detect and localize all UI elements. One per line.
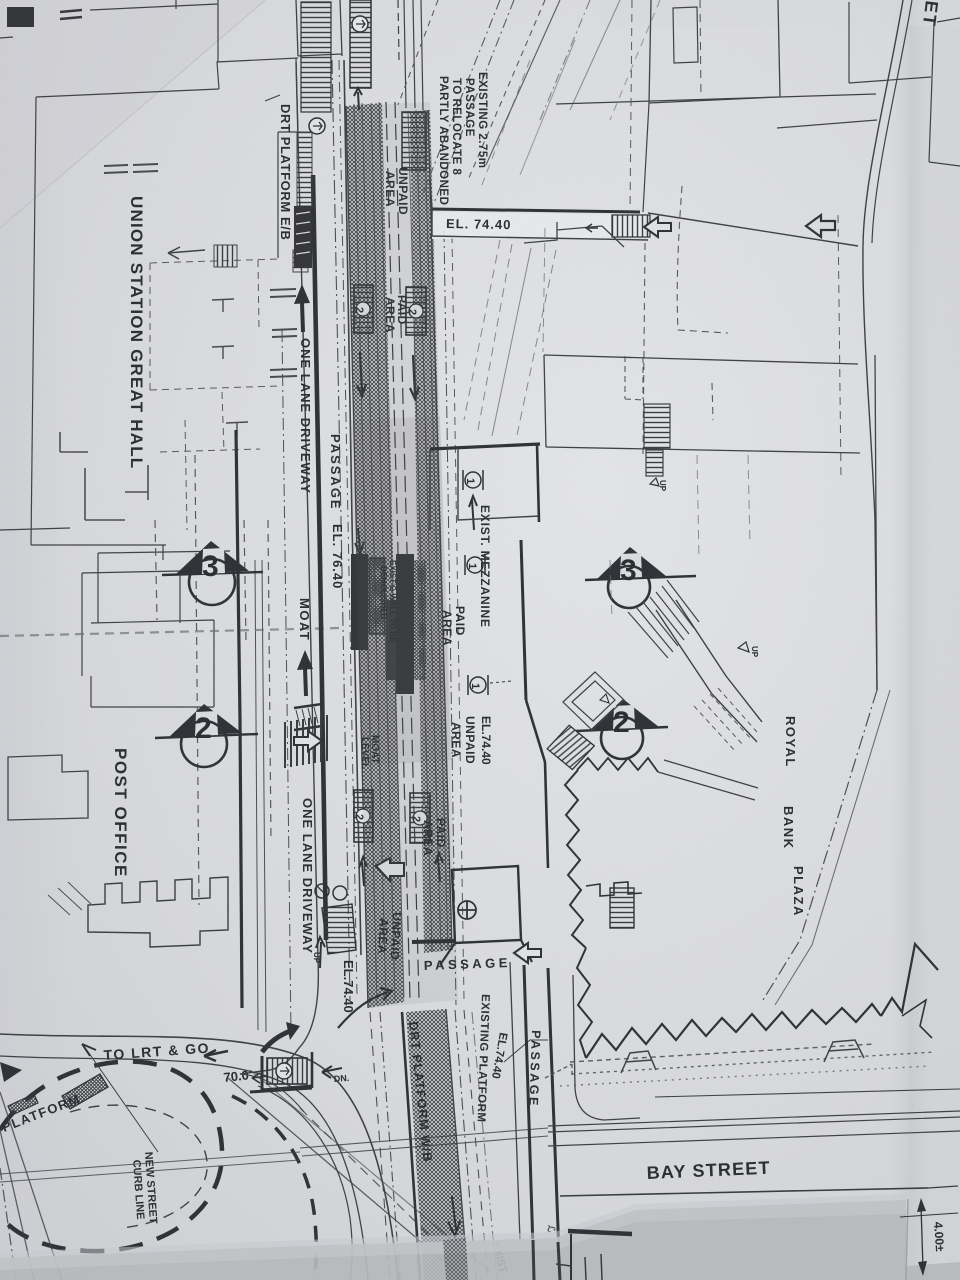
svg-text:EL.74.40: EL.74.40	[479, 716, 493, 765]
svg-text:PASSAGE: PASSAGE	[424, 955, 512, 973]
svg-text:DRT PLATFORM E/B: DRT PLATFORM E/B	[278, 104, 293, 240]
svg-text:PAID: PAID	[453, 606, 467, 636]
svg-text:3: 3	[620, 554, 637, 587]
svg-text:UNPAID: UNPAID	[463, 716, 477, 764]
svg-text:UP: UP	[312, 952, 321, 964]
svg-text:EL. 74.40: EL. 74.40	[446, 216, 512, 232]
svg-text:AREA: AREA	[449, 722, 463, 758]
svg-text:ET: ET	[919, 0, 942, 29]
svg-text:PASSAGE: PASSAGE	[328, 434, 343, 511]
svg-text:POST OFFICE: POST OFFICE	[111, 748, 130, 878]
svg-text:UP: UP	[750, 646, 759, 658]
svg-text:EXISTING 2.75m: EXISTING 2.75m	[476, 72, 488, 168]
svg-text:AREA: AREA	[440, 610, 454, 646]
svg-text:1: 1	[466, 563, 478, 569]
svg-text:3: 3	[202, 550, 219, 583]
svg-text:2: 2	[353, 814, 365, 820]
svg-text:ONE LANE DRIVEWAY: ONE LANE DRIVEWAY	[298, 338, 313, 494]
svg-text:MOAT: MOAT	[297, 598, 312, 641]
svg-text:70.0: 70.0	[223, 1067, 250, 1085]
svg-text:UP: UP	[658, 480, 667, 492]
svg-text:UNION STATION GREAT HALL: UNION STATION GREAT HALL	[127, 196, 146, 469]
svg-text:BANK: BANK	[781, 806, 796, 850]
svg-text:ONE LANE DRIVEWAY: ONE LANE DRIVEWAY	[300, 798, 315, 954]
svg-text:PLAZA: PLAZA	[791, 866, 806, 917]
svg-text:EL.74.40: EL.74.40	[341, 960, 356, 1013]
svg-text:DN.: DN.	[333, 1073, 349, 1084]
svg-text:2: 2	[613, 706, 630, 739]
svg-text:PASSAGE: PASSAGE	[463, 78, 475, 137]
svg-text:2: 2	[195, 712, 212, 745]
svg-text:ℒ: ℒ	[545, 1225, 556, 1233]
svg-text:1: 1	[469, 683, 481, 689]
svg-text:ROYAL: ROYAL	[783, 716, 798, 768]
svg-text:1: 1	[464, 478, 476, 484]
svg-text:4.00±: 4.00±	[931, 1221, 947, 1252]
svg-text:PARTLY ABANDONED: PARTLY ABANDONED	[437, 76, 449, 205]
svg-text:EL. 76.40: EL. 76.40	[330, 524, 345, 589]
svg-text:TO RELOCATE 8: TO RELOCATE 8	[450, 78, 462, 176]
